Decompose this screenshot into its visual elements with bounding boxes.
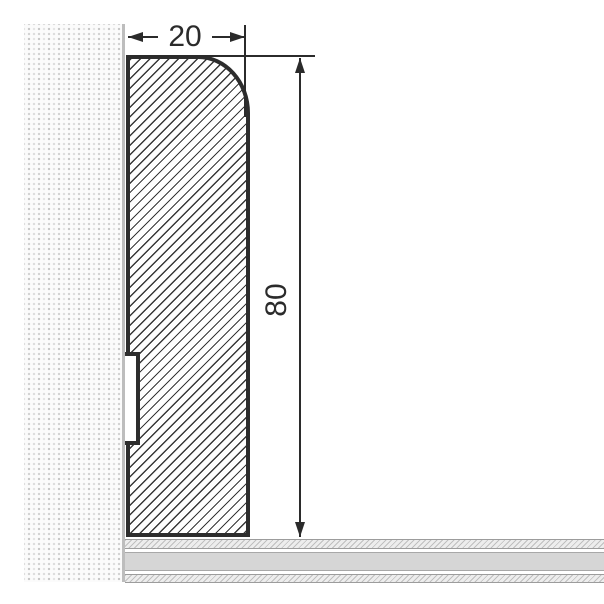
- height-arrow-up-icon: [295, 58, 305, 73]
- technical-drawing: 20 80: [0, 0, 604, 604]
- width-dimension-label: 20: [158, 21, 212, 52]
- width-arrow-left-icon: [128, 32, 143, 42]
- height-dimension-line: [299, 58, 301, 537]
- floor-layer-bottom: [125, 574, 604, 583]
- skirting-back-groove: [125, 352, 140, 445]
- floor-layer-top: [125, 539, 604, 549]
- floor-layer-middle: [125, 552, 604, 571]
- skirting-profile: [126, 55, 250, 537]
- wall-section: [24, 24, 122, 582]
- height-arrow-down-icon: [295, 522, 305, 537]
- wall-edge-line: [122, 24, 125, 582]
- height-dimension-label: 80: [262, 274, 292, 326]
- height-extension-line: [130, 55, 315, 57]
- width-extension-line: [244, 25, 246, 117]
- width-arrow-right-icon: [230, 32, 245, 42]
